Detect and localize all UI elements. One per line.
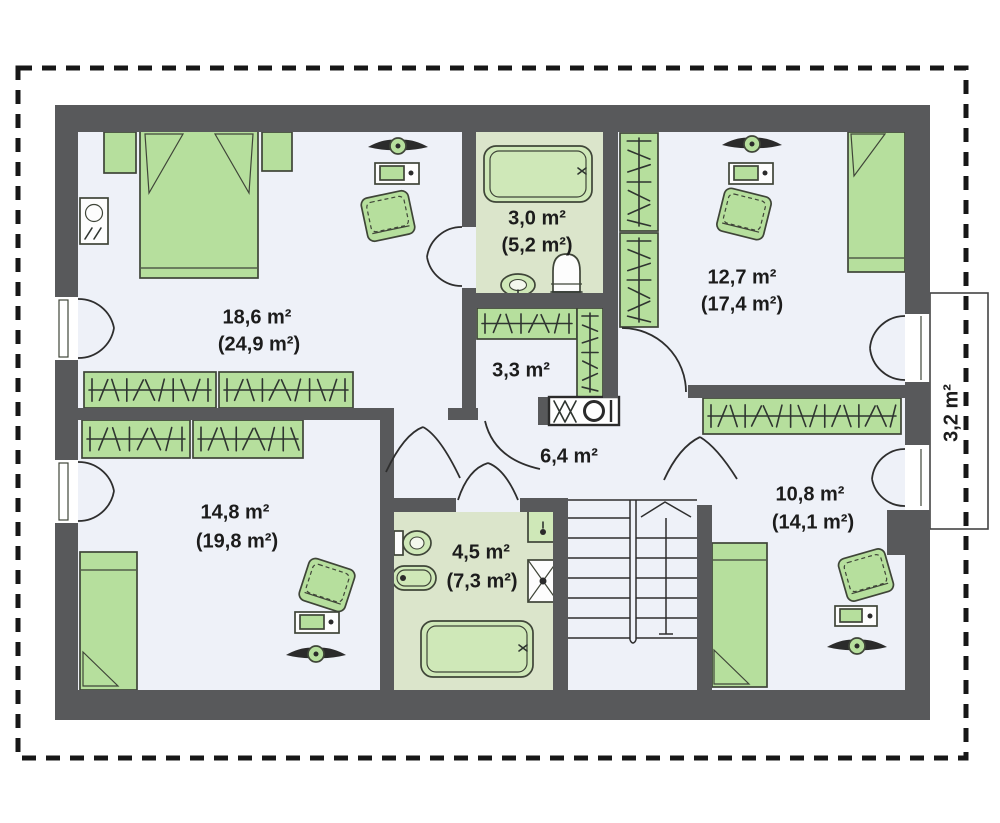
wall-stub xyxy=(538,397,549,425)
desk xyxy=(295,612,339,633)
wardrobe xyxy=(577,308,603,397)
nightstand xyxy=(262,132,292,171)
nightstand xyxy=(104,132,136,173)
desk xyxy=(375,163,419,184)
toilet xyxy=(394,531,431,555)
armchair xyxy=(360,189,416,242)
double-bed xyxy=(140,131,258,278)
window xyxy=(59,463,68,520)
desk xyxy=(835,606,877,626)
single-bed xyxy=(848,132,905,272)
wardrobe xyxy=(703,398,901,434)
window xyxy=(59,300,68,357)
wardrobe xyxy=(477,308,577,339)
wardrobe xyxy=(620,133,658,231)
single-bed xyxy=(712,543,767,687)
wardrobe xyxy=(219,372,353,408)
bathtub xyxy=(484,146,592,202)
floor-plan-drawing xyxy=(0,0,1000,823)
floor-plan: 18,6 m² (24,9 m²) 3,0 m² (5,2 m²) 12,7 m… xyxy=(0,0,1000,823)
wardrobe xyxy=(193,420,303,458)
water-heater xyxy=(551,254,582,292)
chimney-icon xyxy=(80,198,108,244)
single-bed xyxy=(80,552,137,690)
wardrobe xyxy=(82,420,190,458)
wardrobe xyxy=(84,372,216,408)
balcony-outline xyxy=(930,293,988,529)
washbasin xyxy=(392,566,436,590)
desk xyxy=(729,163,773,184)
wardrobe xyxy=(620,233,658,327)
washing-machine-icon xyxy=(549,397,619,425)
bathtub xyxy=(421,621,533,677)
